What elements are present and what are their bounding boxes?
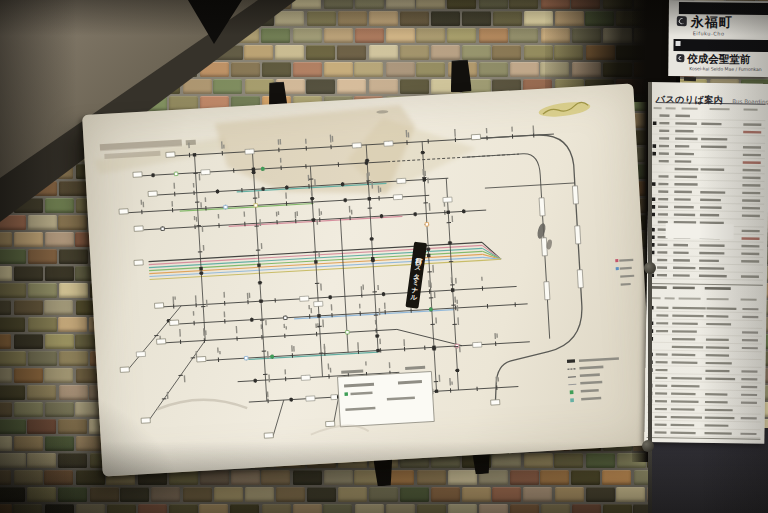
map-mark	[575, 226, 581, 244]
table-mark	[741, 417, 757, 419]
table-mark	[673, 274, 690, 277]
table-mark	[656, 314, 668, 316]
map-mark	[314, 260, 318, 264]
map-mark	[311, 197, 314, 200]
map-mark	[512, 134, 513, 138]
map-mark	[218, 214, 220, 219]
bus-stop-icon	[676, 54, 684, 62]
map-mark	[393, 194, 402, 199]
map-mark	[533, 133, 534, 137]
map-mark	[219, 351, 221, 354]
table-mark	[651, 142, 765, 144]
table-mark	[741, 275, 759, 278]
table-mark	[655, 416, 667, 418]
table-mark	[657, 251, 667, 254]
map-mark	[427, 254, 431, 258]
frame-bolt	[644, 262, 656, 274]
table-mark	[666, 107, 676, 109]
table-mark	[650, 240, 764, 242]
table-mark	[671, 424, 695, 427]
guide-header: バスのりば案内 Bus Boarding Guide	[656, 87, 766, 105]
table-mark	[651, 297, 661, 299]
table-mark	[674, 191, 692, 194]
table-mark	[656, 353, 668, 355]
guide-title-en: Bus Boarding Guide	[732, 98, 768, 105]
map-mark	[195, 303, 196, 307]
map-mark	[201, 306, 205, 307]
map-mark	[236, 326, 238, 333]
table-mark	[655, 400, 667, 402]
table-mark	[671, 416, 702, 419]
map-mark	[495, 342, 496, 346]
map-mark	[423, 202, 427, 203]
table-mark	[742, 308, 758, 310]
map-mark	[308, 305, 310, 309]
table-mark	[648, 327, 762, 329]
map-mark	[370, 237, 373, 240]
map-mark	[165, 329, 397, 342]
table-mark	[649, 263, 763, 265]
table-mark	[699, 267, 724, 270]
table-mark	[657, 266, 667, 269]
table-mark	[671, 408, 695, 411]
map-mark	[262, 351, 266, 352]
map-mark	[379, 339, 381, 345]
map-mark	[141, 418, 150, 424]
map-mark	[179, 304, 527, 324]
table-mark	[673, 286, 695, 289]
map-mark	[257, 263, 261, 267]
map-mark	[300, 296, 309, 301]
table-mark	[656, 361, 668, 363]
map-mark	[446, 210, 450, 214]
table-mark	[653, 121, 657, 125]
map-mark	[236, 336, 237, 340]
map-mark	[199, 173, 201, 180]
table-mark	[651, 235, 655, 239]
map-mark	[449, 378, 451, 386]
map-mark	[317, 323, 319, 328]
map-mark	[180, 340, 181, 344]
map-mark	[195, 295, 197, 302]
map-mark	[270, 355, 274, 359]
map-mark	[572, 186, 578, 204]
map-mark	[424, 171, 426, 176]
table-mark	[710, 108, 730, 110]
map-mark	[450, 284, 454, 285]
table-mark	[742, 184, 760, 187]
table-mark	[651, 134, 765, 136]
map-mark	[216, 190, 219, 193]
map-mark	[455, 306, 456, 310]
map-mark	[446, 178, 458, 390]
map-mark	[314, 301, 323, 306]
map-mark	[218, 223, 219, 227]
map-mark	[456, 369, 459, 372]
map-mark	[485, 183, 575, 188]
map-mark	[352, 143, 361, 148]
map-mark	[119, 209, 128, 215]
table-mark	[675, 130, 693, 133]
map-mark	[311, 191, 313, 196]
map-mark	[315, 324, 317, 328]
map-mark	[285, 326, 287, 329]
table-mark	[699, 244, 724, 247]
table-mark	[700, 214, 719, 217]
station-signs-panel: 永福町 Eifuku-Cho 佼成会聖堂前 Kosei-kai Seido Ma…	[668, 0, 768, 77]
table-mark	[679, 297, 701, 299]
route-network-svg	[82, 83, 654, 476]
map-mark	[174, 296, 176, 299]
table-mark	[672, 354, 696, 357]
map-mark	[193, 183, 195, 187]
map-mark	[371, 257, 375, 261]
table-mark	[649, 278, 763, 280]
table-mark	[658, 221, 668, 224]
table-mark	[671, 400, 699, 403]
map-mark	[179, 329, 181, 337]
map-mark	[428, 280, 430, 287]
map-mark	[368, 208, 372, 209]
map-mark	[368, 197, 372, 201]
map-mark	[465, 153, 550, 343]
table-mark	[743, 123, 761, 126]
map-mark	[541, 238, 547, 256]
map-mark	[267, 351, 269, 358]
map-mark	[178, 375, 182, 376]
table-mark	[650, 187, 764, 189]
map-mark	[291, 345, 293, 351]
map-mark	[161, 227, 165, 231]
table-mark	[647, 381, 761, 383]
map-mark	[172, 296, 174, 304]
map-mark	[443, 197, 452, 202]
map-mark	[427, 271, 431, 272]
table-mark	[648, 334, 762, 336]
small-wall-mark	[684, 77, 696, 82]
map-mark	[134, 260, 143, 266]
map-mark	[384, 141, 393, 146]
table-mark	[652, 144, 656, 148]
map-mark	[278, 211, 280, 215]
table-mark	[659, 152, 669, 155]
map-mark	[180, 204, 314, 212]
map-mark	[143, 340, 209, 421]
map-mark	[261, 335, 262, 339]
map-mark	[481, 277, 483, 281]
map-mark	[154, 335, 158, 336]
map-mark	[473, 342, 482, 347]
table-mark	[742, 230, 760, 233]
table-mark	[655, 424, 667, 426]
table-mark	[654, 107, 662, 109]
signboard-logo-chip	[676, 41, 681, 46]
table-mark	[701, 138, 727, 141]
table-mark	[665, 297, 675, 299]
map-mark	[200, 271, 203, 274]
map-mark	[258, 281, 261, 284]
map-mark	[173, 304, 174, 308]
map-mark	[293, 346, 295, 352]
table-mark	[741, 370, 757, 372]
map-mark	[133, 172, 142, 178]
map-mark	[344, 198, 347, 201]
map-mark	[378, 196, 379, 200]
map-mark	[341, 183, 344, 186]
map-mark	[404, 347, 405, 351]
map-mark	[361, 286, 363, 293]
table-mark	[649, 283, 763, 286]
table-mark	[673, 267, 695, 270]
table-mark	[671, 377, 702, 380]
map-mark	[196, 225, 200, 226]
table-mark	[649, 271, 763, 273]
map-mark	[486, 128, 488, 133]
map-mark	[261, 243, 263, 249]
map-mark	[429, 289, 430, 293]
table-mark	[654, 431, 666, 433]
map-mark	[483, 259, 501, 260]
map-mark	[434, 381, 438, 382]
map-mark	[317, 314, 321, 318]
station-sign-eifukucho: 永福町	[691, 13, 733, 31]
map-mark	[476, 133, 587, 404]
table-mark	[674, 198, 691, 201]
table-mark	[706, 346, 729, 349]
map-mark	[174, 172, 178, 176]
map-mark	[264, 433, 273, 439]
table-mark	[647, 420, 761, 422]
map-mark	[539, 198, 545, 216]
station-sign-eifukucho-romaji: Eifuku-Cho	[693, 30, 725, 36]
map-mark	[384, 303, 386, 309]
table-mark	[706, 354, 729, 357]
table-mark	[705, 370, 729, 373]
table-mark	[742, 316, 758, 318]
map-mark	[223, 292, 225, 298]
map-mark	[171, 201, 173, 207]
map-mark	[577, 270, 583, 288]
map-mark	[151, 174, 154, 177]
table-mark	[658, 183, 668, 186]
table-mark	[741, 260, 759, 263]
map-mark	[193, 321, 194, 325]
map-mark	[380, 348, 381, 352]
table-mark	[706, 307, 736, 310]
table-mark	[651, 149, 765, 151]
table-mark	[705, 401, 728, 404]
table-mark	[743, 154, 761, 157]
table-mark	[655, 408, 667, 410]
map-mark	[421, 151, 424, 154]
table-mark	[659, 130, 669, 133]
map-mark	[193, 191, 194, 195]
table-mark	[659, 122, 669, 125]
map-mark	[351, 210, 353, 215]
map-mark	[244, 356, 248, 360]
table-mark	[741, 386, 757, 388]
map-legend	[332, 258, 642, 427]
map-mark	[456, 300, 458, 304]
table-mark	[743, 131, 761, 134]
map-mark	[432, 265, 434, 273]
map-mark	[408, 132, 410, 137]
table-mark	[659, 137, 669, 140]
map-mark	[259, 299, 263, 303]
map-mark	[375, 320, 377, 325]
table-mark	[740, 433, 756, 435]
table-mark	[741, 252, 759, 255]
table-mark	[648, 311, 762, 313]
table-mark	[658, 213, 668, 216]
map-mark	[198, 251, 202, 252]
table-mark	[742, 237, 760, 240]
table-mark	[652, 182, 656, 186]
map-mark	[316, 332, 317, 336]
map-mark	[435, 389, 439, 393]
map-mark	[136, 352, 145, 357]
table-mark	[675, 145, 689, 148]
rail-line-icon	[677, 16, 687, 26]
yellow-scribble-mark	[538, 100, 591, 120]
table-mark	[659, 114, 669, 117]
map-mark	[429, 297, 433, 298]
map-mark	[224, 205, 228, 209]
map-mark	[193, 153, 197, 157]
map-mark	[365, 159, 368, 162]
map-mark	[252, 168, 256, 172]
map-mark	[326, 421, 335, 427]
map-mark	[471, 134, 480, 140]
map-mark	[148, 191, 157, 197]
map-mark	[252, 171, 255, 174]
table-mark	[651, 126, 765, 128]
map-mark	[256, 249, 260, 250]
map-mark	[205, 330, 207, 335]
table-mark	[741, 378, 757, 380]
map-mark	[322, 319, 324, 327]
map-mark	[380, 214, 383, 217]
table-mark	[647, 397, 761, 399]
map-mark	[301, 375, 310, 380]
map-mark	[454, 297, 456, 303]
map-mark	[263, 374, 267, 375]
map-mark	[452, 324, 456, 325]
map-mark	[365, 361, 367, 365]
table-mark	[672, 330, 697, 333]
map-mark	[203, 245, 205, 251]
map-mark	[444, 210, 445, 214]
table-mark	[700, 206, 722, 209]
table-mark	[659, 175, 669, 178]
map-mark	[268, 375, 270, 383]
table-mark	[701, 123, 721, 126]
map-mark	[315, 283, 319, 284]
table-mark	[649, 248, 763, 250]
map-mark	[243, 211, 245, 216]
table-mark	[705, 393, 727, 396]
table-mark	[657, 274, 667, 277]
table-mark	[742, 199, 760, 202]
map-mark	[361, 293, 362, 297]
map-mark	[496, 334, 498, 338]
photo-scene: 西口バスターミナル バスのりば案内 Bus Boarding Guide 永福町…	[0, 0, 768, 513]
map-mark	[430, 324, 434, 325]
map-mark	[497, 377, 499, 381]
map-mark	[245, 149, 254, 154]
table-mark	[675, 137, 698, 140]
table-mark	[701, 168, 725, 171]
table-mark	[699, 259, 719, 262]
table-mark	[652, 197, 656, 201]
map-mark	[454, 129, 456, 137]
map-mark	[434, 291, 436, 298]
table-mark	[674, 175, 696, 178]
map-mark	[201, 170, 210, 175]
map-mark	[224, 311, 226, 317]
table-mark	[648, 350, 762, 352]
frame-bolt	[642, 440, 654, 452]
map-mark	[451, 288, 455, 292]
map-mark	[284, 316, 288, 320]
map-mark	[267, 399, 268, 403]
table-mark	[706, 323, 731, 326]
map-mark	[296, 211, 298, 216]
table-mark	[651, 213, 655, 217]
table-mark	[675, 153, 694, 156]
table-mark	[672, 315, 703, 318]
table-mark	[648, 342, 762, 344]
table-mark	[699, 252, 724, 255]
table-mark	[706, 315, 728, 318]
table-mark	[673, 244, 688, 247]
map-mark	[330, 368, 332, 373]
map-mark	[482, 286, 483, 290]
table-mark	[659, 145, 669, 148]
guide-title-jp: バスのりば案内	[656, 94, 724, 105]
table-mark	[658, 206, 668, 209]
map-mark	[318, 252, 320, 257]
map-mark	[320, 283, 322, 290]
table-mark	[742, 207, 760, 210]
map-mark	[328, 363, 330, 369]
map-mark	[172, 208, 173, 212]
table-mark	[741, 298, 757, 300]
map-mark	[328, 374, 329, 378]
map-mark	[261, 167, 265, 171]
map-mark	[429, 308, 433, 312]
map-mark	[429, 203, 431, 211]
map-mark	[163, 286, 516, 306]
map-mark	[223, 145, 225, 149]
station-sign-koseikai: 佼成会聖堂前	[687, 52, 750, 67]
map-mark	[290, 398, 293, 401]
map-mark	[247, 293, 249, 299]
table-mark	[650, 202, 764, 204]
table-mark	[744, 108, 758, 110]
table-mark	[743, 169, 761, 172]
table-mark	[704, 432, 731, 435]
map-mark	[141, 210, 142, 214]
map-mark	[199, 267, 203, 271]
map-mark	[425, 223, 429, 227]
map-mark	[229, 216, 403, 226]
table-mark	[657, 244, 667, 247]
table-mark	[658, 198, 668, 201]
map-mark	[357, 342, 359, 349]
map-mark	[455, 344, 459, 348]
map-mark	[271, 400, 286, 437]
